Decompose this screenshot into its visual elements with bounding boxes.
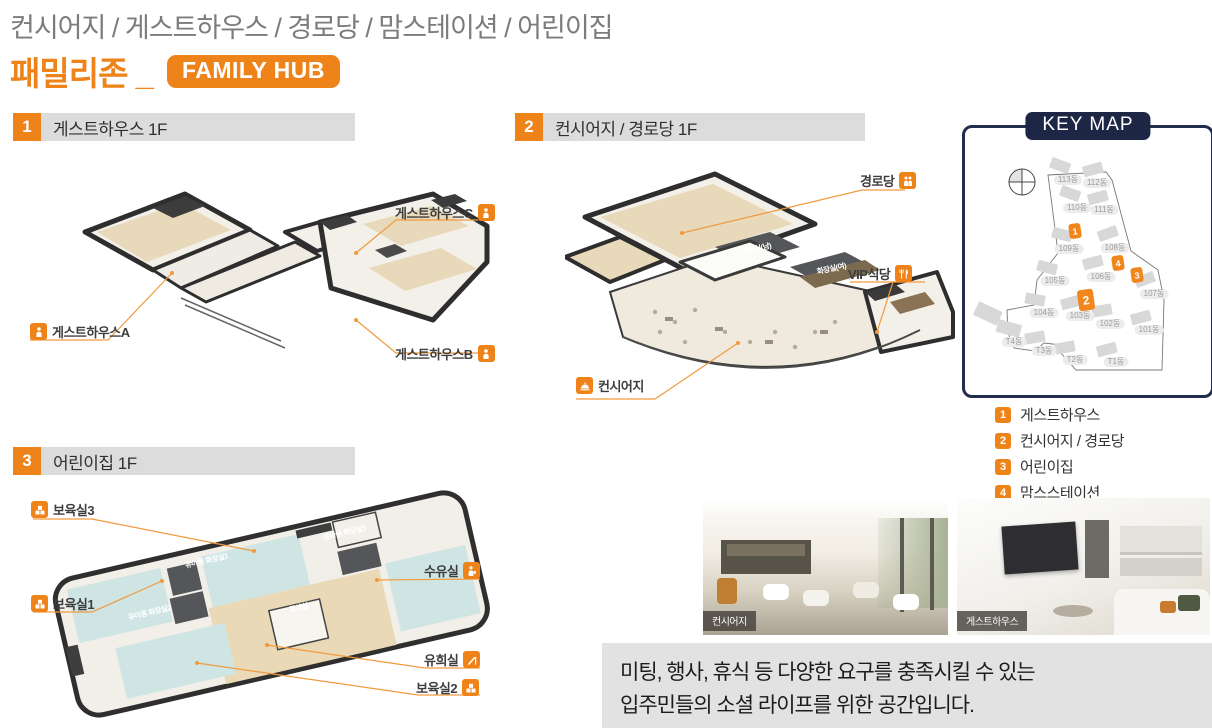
restaurant-icon: [895, 265, 912, 282]
section-number-1: 1: [13, 113, 41, 141]
legend-num-3: 3: [995, 459, 1011, 475]
keymap-legend: 1 게스트하우스 2 컨시어지 / 경로당 3 어린이집 4 맘스스테이션: [995, 404, 1124, 508]
key-map-panel: KEY MAP: [962, 125, 1212, 398]
nursery-blocks-icon: [462, 679, 479, 696]
keymap-building-label: 109동: [1055, 244, 1084, 254]
keymap-building-label: 102동: [1096, 319, 1125, 329]
concierge-floorplan: 화장실(남) 화장실(여): [565, 162, 955, 407]
keymap-marker-4: 4: [1111, 255, 1125, 272]
keymap-building-label: 107동: [1140, 289, 1169, 299]
legend-item-daycare: 3 어린이집: [995, 456, 1124, 477]
keymap-building-label: 106동: [1087, 272, 1116, 282]
keymap-building-label: T1동: [1104, 357, 1129, 367]
keymap-building-label: T3동: [1032, 346, 1057, 356]
section-title-guesthouse: 게스트하우스 1F: [53, 113, 167, 141]
playroom-slide-icon: [463, 651, 480, 668]
label-senior-center: 경로당: [860, 171, 916, 190]
brochure-page: 컨시어지 / 게스트하우스 / 경로당 / 맘스테이션 / 어린이집 패밀리존 …: [0, 0, 1212, 728]
keymap-building-label: 110동: [1063, 203, 1091, 213]
description-box: 미팅, 행사, 휴식 등 다양한 요구를 충족시킬 수 있는 입주민들의 소셜 …: [602, 643, 1212, 728]
keymap-marker-1: 1: [1068, 223, 1082, 240]
concierge-bell-icon: [576, 377, 593, 394]
photo-caption: 컨시어지: [703, 611, 756, 631]
guest-person-icon: [478, 204, 495, 221]
room-label-kitchen: 조리실: [319, 501, 341, 515]
photo-concierge-lounge: 컨시어지: [703, 498, 948, 635]
keymap-building-label: 108동: [1101, 243, 1130, 253]
label-playroom: 유희실: [424, 650, 480, 669]
label-nursery2: 보육실2: [416, 678, 479, 697]
label-nursery3: 보육실3: [31, 500, 94, 519]
key-map-drawing: [965, 128, 1205, 389]
nursery-blocks-icon: [31, 595, 48, 612]
keymap-building-label: 104동: [1030, 308, 1059, 318]
keymap-building-label: 112동: [1083, 178, 1111, 188]
legend-num-2: 2: [995, 433, 1011, 449]
label-guesthouse-c: 게스트하우스C: [395, 203, 495, 222]
label-guesthouse-b: 게스트하우스B: [395, 344, 495, 363]
keymap-building-label: 111동: [1090, 205, 1118, 215]
section-header-concierge: 2 컨시어지 / 경로당 1F: [515, 113, 865, 141]
label-nursery1: 보육실1: [31, 594, 94, 613]
page-subtitle: 컨시어지 / 게스트하우스 / 경로당 / 맘스테이션 / 어린이집: [10, 6, 613, 45]
label-guesthouse-a: 게스트하우스A: [30, 322, 130, 341]
title-bar: 패밀리존 _ FAMILY HUB: [10, 47, 340, 95]
keymap-building-label: 113동: [1054, 175, 1082, 185]
page-title: 패밀리존 _: [10, 47, 153, 95]
legend-num-1: 1: [995, 407, 1011, 423]
legend-item-concierge: 2 컨시어지 / 경로당: [995, 430, 1124, 451]
keymap-building-label: 103동: [1066, 311, 1095, 321]
photo-caption: 게스트하우스: [957, 611, 1027, 631]
section-header-guesthouse: 1 게스트하우스 1F: [13, 113, 355, 141]
compass-icon: [1009, 169, 1035, 195]
label-nursing-room: 수유실: [424, 561, 480, 580]
keymap-marker-3: 3: [1130, 267, 1144, 284]
section-title-daycare: 어린이집 1F: [53, 447, 137, 475]
family-hub-badge: FAMILY HUB: [167, 55, 340, 88]
keymap-building-label: T2동: [1063, 355, 1088, 365]
keymap-building-label: 105동: [1041, 276, 1070, 286]
description-line-1: 미팅, 행사, 휴식 등 다양한 요구를 충족시킬 수 있는: [620, 656, 1212, 689]
keymap-building-label: 101동: [1135, 325, 1164, 335]
nursing-icon: [463, 562, 480, 579]
label-concierge: 컨시어지: [576, 376, 644, 395]
section-title-concierge: 컨시어지 / 경로당 1F: [555, 113, 697, 141]
section-header-daycare: 3 어린이집 1F: [13, 447, 355, 475]
description-line-2: 입주민들의 소셜 라이프를 위한 공간입니다.: [620, 689, 1212, 722]
legend-item-guesthouse: 1 게스트하우스: [995, 404, 1124, 425]
guest-person-icon: [30, 323, 47, 340]
photo-guesthouse-room: 게스트하우스: [957, 498, 1210, 635]
label-vip-dining: VIP식당: [848, 264, 912, 283]
section-number-3: 3: [13, 447, 41, 475]
section-number-2: 2: [515, 113, 543, 141]
keymap-marker-2: 2: [1077, 288, 1096, 311]
nursery-blocks-icon: [31, 501, 48, 518]
guest-person-icon: [478, 345, 495, 362]
keymap-building-label: T4동: [1002, 337, 1027, 347]
seniors-icon: [899, 172, 916, 189]
